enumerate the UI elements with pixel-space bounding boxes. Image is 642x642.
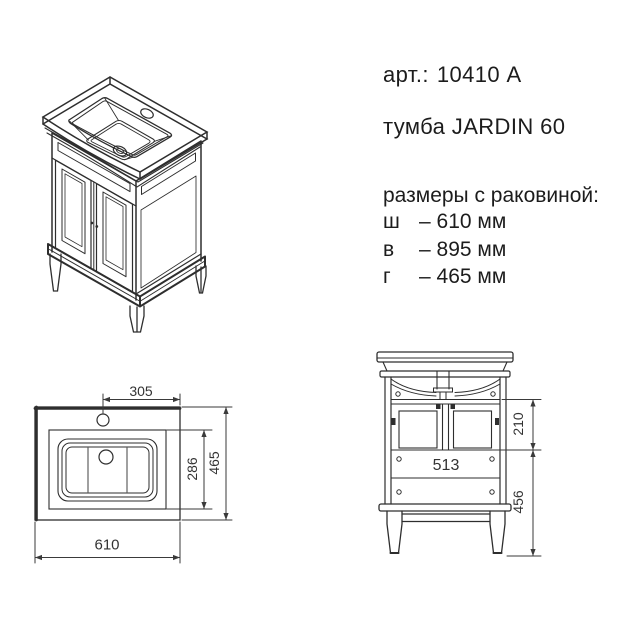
drain-hole-plan	[99, 450, 113, 464]
dim-label-286: 286	[184, 457, 200, 480]
spec-row-depth: г– 465 мм	[383, 265, 506, 289]
faucet-hole-plan	[97, 414, 109, 426]
spec-value: – 610 мм	[419, 210, 506, 233]
article-value: 10410 A	[437, 62, 522, 87]
article-label: арт.:	[383, 62, 429, 87]
spec-value: – 465 мм	[419, 265, 506, 288]
article-line: арт.:10410 A	[383, 62, 522, 88]
spec-letter: г	[383, 265, 419, 289]
dim-label-210: 210	[510, 412, 526, 435]
dim-label-305: 305	[129, 383, 152, 399]
spec-letter: в	[383, 238, 419, 262]
top-view-dimensions	[35, 394, 232, 563]
spec-row-width: ш– 610 мм	[383, 210, 506, 234]
front-view-drawing	[377, 352, 513, 553]
isometric-view-drawing	[43, 77, 207, 332]
top-view-drawing	[35, 407, 180, 520]
product-spec-sheet: арт.:10410 A тумба JARDIN 60 размеры с р…	[0, 0, 642, 642]
spec-value: – 895 мм	[419, 238, 506, 261]
dim-label-456: 456	[510, 490, 526, 513]
spec-row-height: в– 895 мм	[383, 238, 506, 262]
spec-letter: ш	[383, 210, 419, 234]
specs-title: размеры с раковиной:	[383, 184, 599, 208]
product-name: тумба JARDIN 60	[383, 114, 565, 140]
dim-label-513: 513	[433, 457, 460, 475]
dim-label-610: 610	[94, 537, 119, 554]
dim-label-465: 465	[206, 451, 222, 474]
